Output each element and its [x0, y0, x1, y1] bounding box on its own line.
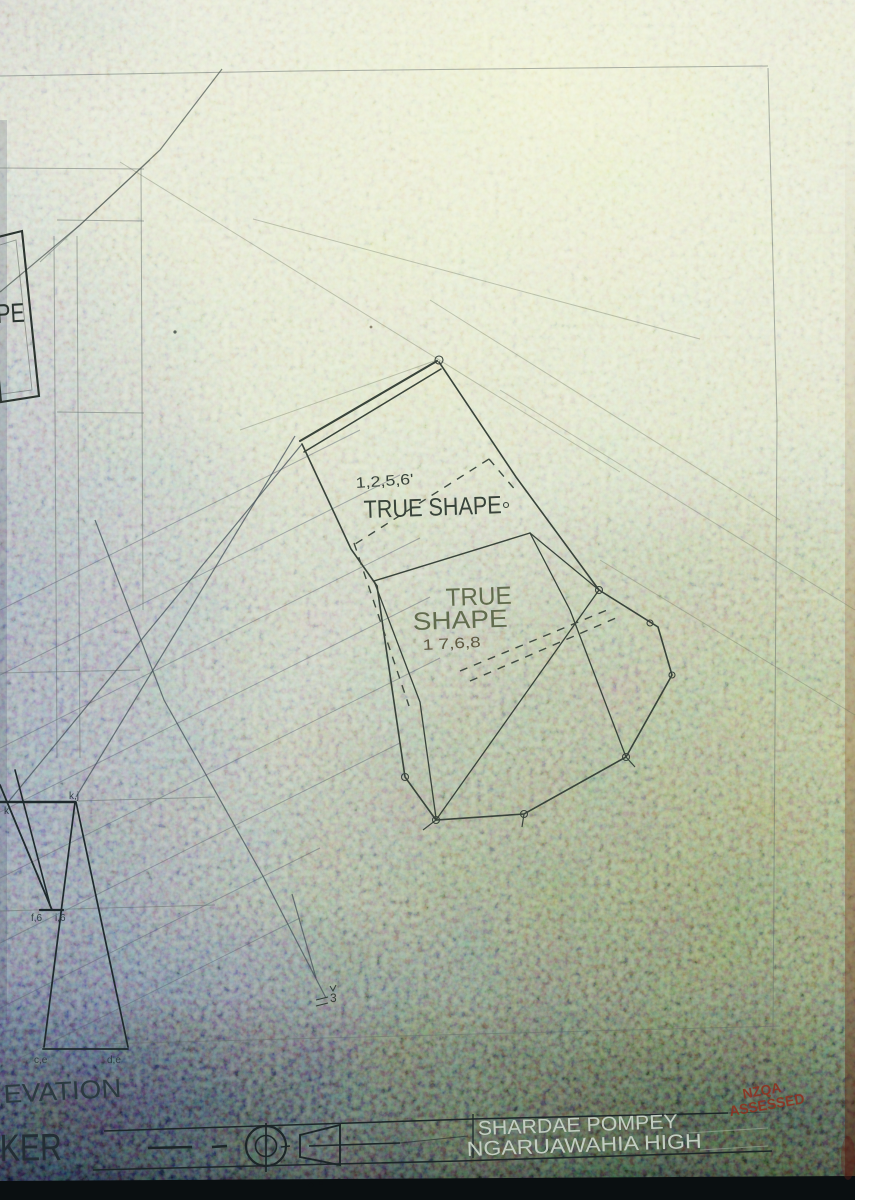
svg-text:i,6: i,6 [55, 913, 66, 924]
svg-text:d,e: d,e [107, 1055, 121, 1066]
svg-text:1,2,5,6': 1,2,5,6' [355, 471, 414, 492]
svg-text:SHAPE: SHAPE [412, 605, 508, 636]
svg-text:c,e: c,e [34, 1055, 48, 1066]
svg-text:KER: KER [0, 1127, 62, 1170]
svg-text:PE: PE [0, 298, 25, 329]
svg-text:3: 3 [330, 991, 337, 1005]
svg-text:k,j: k,j [69, 791, 79, 802]
svg-text:1 7,6,8: 1 7,6,8 [422, 634, 481, 654]
svg-text:EVATION: EVATION [3, 1073, 122, 1109]
svg-text:TRUE SHAPE: TRUE SHAPE [363, 491, 502, 524]
svg-text:f,6: f,6 [31, 913, 43, 924]
